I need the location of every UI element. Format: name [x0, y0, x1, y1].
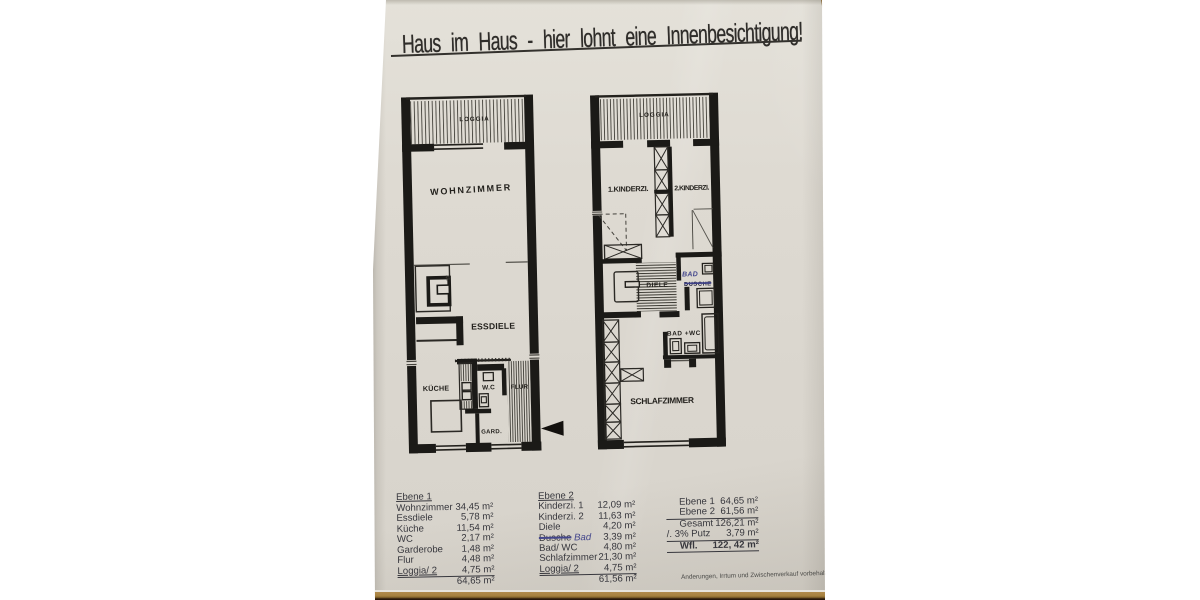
- svg-text:BAD +WC: BAD +WC: [667, 330, 701, 338]
- svg-text:LOGGIA: LOGGIA: [639, 111, 670, 119]
- svg-text:GARD.: GARD.: [481, 429, 502, 435]
- svg-text:DIELE: DIELE: [646, 282, 668, 289]
- svg-text:ESSDIELE: ESSDIELE: [471, 321, 515, 332]
- svg-text:W.C: W.C: [482, 384, 495, 391]
- svg-text:FLUR: FLUR: [511, 384, 529, 391]
- svg-text:WOHNZIMMER: WOHNZIMMER: [430, 182, 512, 197]
- svg-text:SCHLAFZIMMER: SCHLAFZIMMER: [630, 395, 694, 406]
- svg-text:1.KINDERZI.: 1.KINDERZI.: [608, 184, 649, 194]
- svg-text:2.KINDERZI.: 2.KINDERZI.: [674, 185, 709, 193]
- svg-text:BAD: BAD: [682, 271, 698, 278]
- svg-text:KÜCHE: KÜCHE: [423, 384, 450, 394]
- svg-text:LOGGIA: LOGGIA: [459, 116, 490, 124]
